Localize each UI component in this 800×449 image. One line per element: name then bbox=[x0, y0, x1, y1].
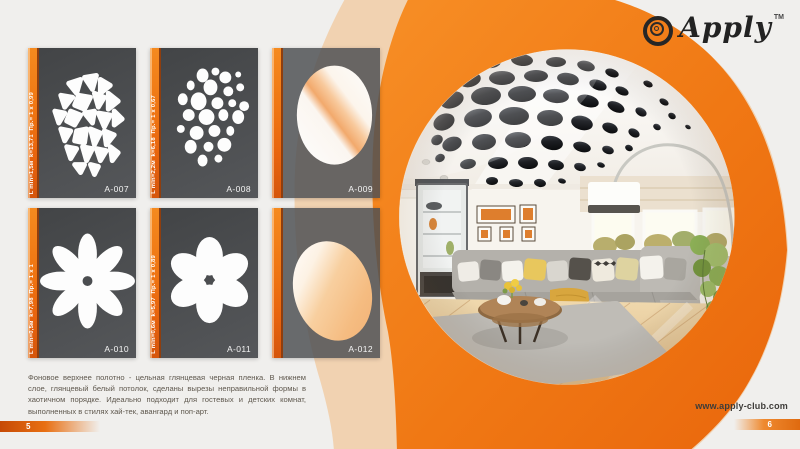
card-spec-stripe bbox=[272, 48, 283, 198]
card-id: A-011 bbox=[227, 344, 251, 354]
card-spec-text: L min=0,5м k=7,98 Пр.= 1 x 1 bbox=[29, 264, 38, 354]
card-spec-text: L min=1,5м k=13,71 Пр.= 1 x 0,99 bbox=[29, 92, 38, 194]
brand-logo: Apply TM bbox=[643, 13, 784, 46]
card-id: A-010 bbox=[104, 344, 129, 354]
website-link[interactable]: www.apply-club.com bbox=[695, 401, 788, 411]
pattern-pebble-mosaic bbox=[39, 48, 136, 198]
page-number-right: 6 bbox=[768, 419, 772, 430]
product-card-a010: L min=0,5м k=7,98 Пр.= 1 x 1 A-010 bbox=[28, 208, 136, 358]
card-spec-text: L min=0,6м k=5,97 Пр.= 1 x 0,89 bbox=[151, 255, 160, 354]
product-card-a012: A-012 bbox=[272, 208, 380, 358]
card-spec-stripe bbox=[272, 208, 283, 358]
product-card-a008: L min=2,2м k=6,18 Пр.= 1 x 0,67 A-008 bbox=[150, 48, 258, 198]
card-spec-text: L min=2,2м k=6,18 Пр.= 1 x 0,67 bbox=[151, 95, 160, 194]
page-number-bar-right: 6 bbox=[734, 419, 800, 430]
pattern-daisy-8-petal bbox=[39, 208, 136, 358]
brand-name: Apply bbox=[679, 13, 772, 43]
card-spec-stripe: L min=2,2м k=6,18 Пр.= 1 x 0,67 bbox=[150, 48, 161, 198]
pattern-egg-window bbox=[283, 208, 380, 358]
catalog-page: L min=1,5м k=13,71 Пр.= 1 x 0,99 A-007 L… bbox=[0, 0, 800, 449]
page-number-bar-left: 5 bbox=[0, 421, 100, 432]
product-card-a007: L min=1,5м k=13,71 Пр.= 1 x 0,99 A-007 bbox=[28, 48, 136, 198]
card-id: A-008 bbox=[226, 184, 251, 194]
trademark-mark: TM bbox=[774, 14, 784, 21]
card-id: A-009 bbox=[348, 184, 373, 194]
card-spec-stripe: L min=0,5м k=7,98 Пр.= 1 x 1 bbox=[28, 208, 39, 358]
card-id: A-012 bbox=[348, 344, 373, 354]
card-id: A-007 bbox=[104, 184, 129, 194]
product-description: Фоновое верхнее полотно - цельная глянце… bbox=[28, 372, 306, 418]
card-spec-stripe: L min=0,6м k=5,97 Пр.= 1 x 0,89 bbox=[150, 208, 161, 358]
product-card-a011: L min=0,6м k=5,97 Пр.= 1 x 0,89 A-011 bbox=[150, 208, 258, 358]
concentric-circles-icon bbox=[643, 16, 673, 46]
product-card-a009: A-009 bbox=[272, 48, 380, 198]
pattern-oval-window bbox=[283, 48, 380, 198]
pattern-scattered-dots bbox=[161, 48, 258, 198]
card-spec-stripe: L min=1,5м k=13,71 Пр.= 1 x 0,99 bbox=[28, 48, 39, 198]
pattern-flower-6-petal bbox=[161, 208, 258, 358]
page-number-left: 5 bbox=[26, 421, 30, 432]
